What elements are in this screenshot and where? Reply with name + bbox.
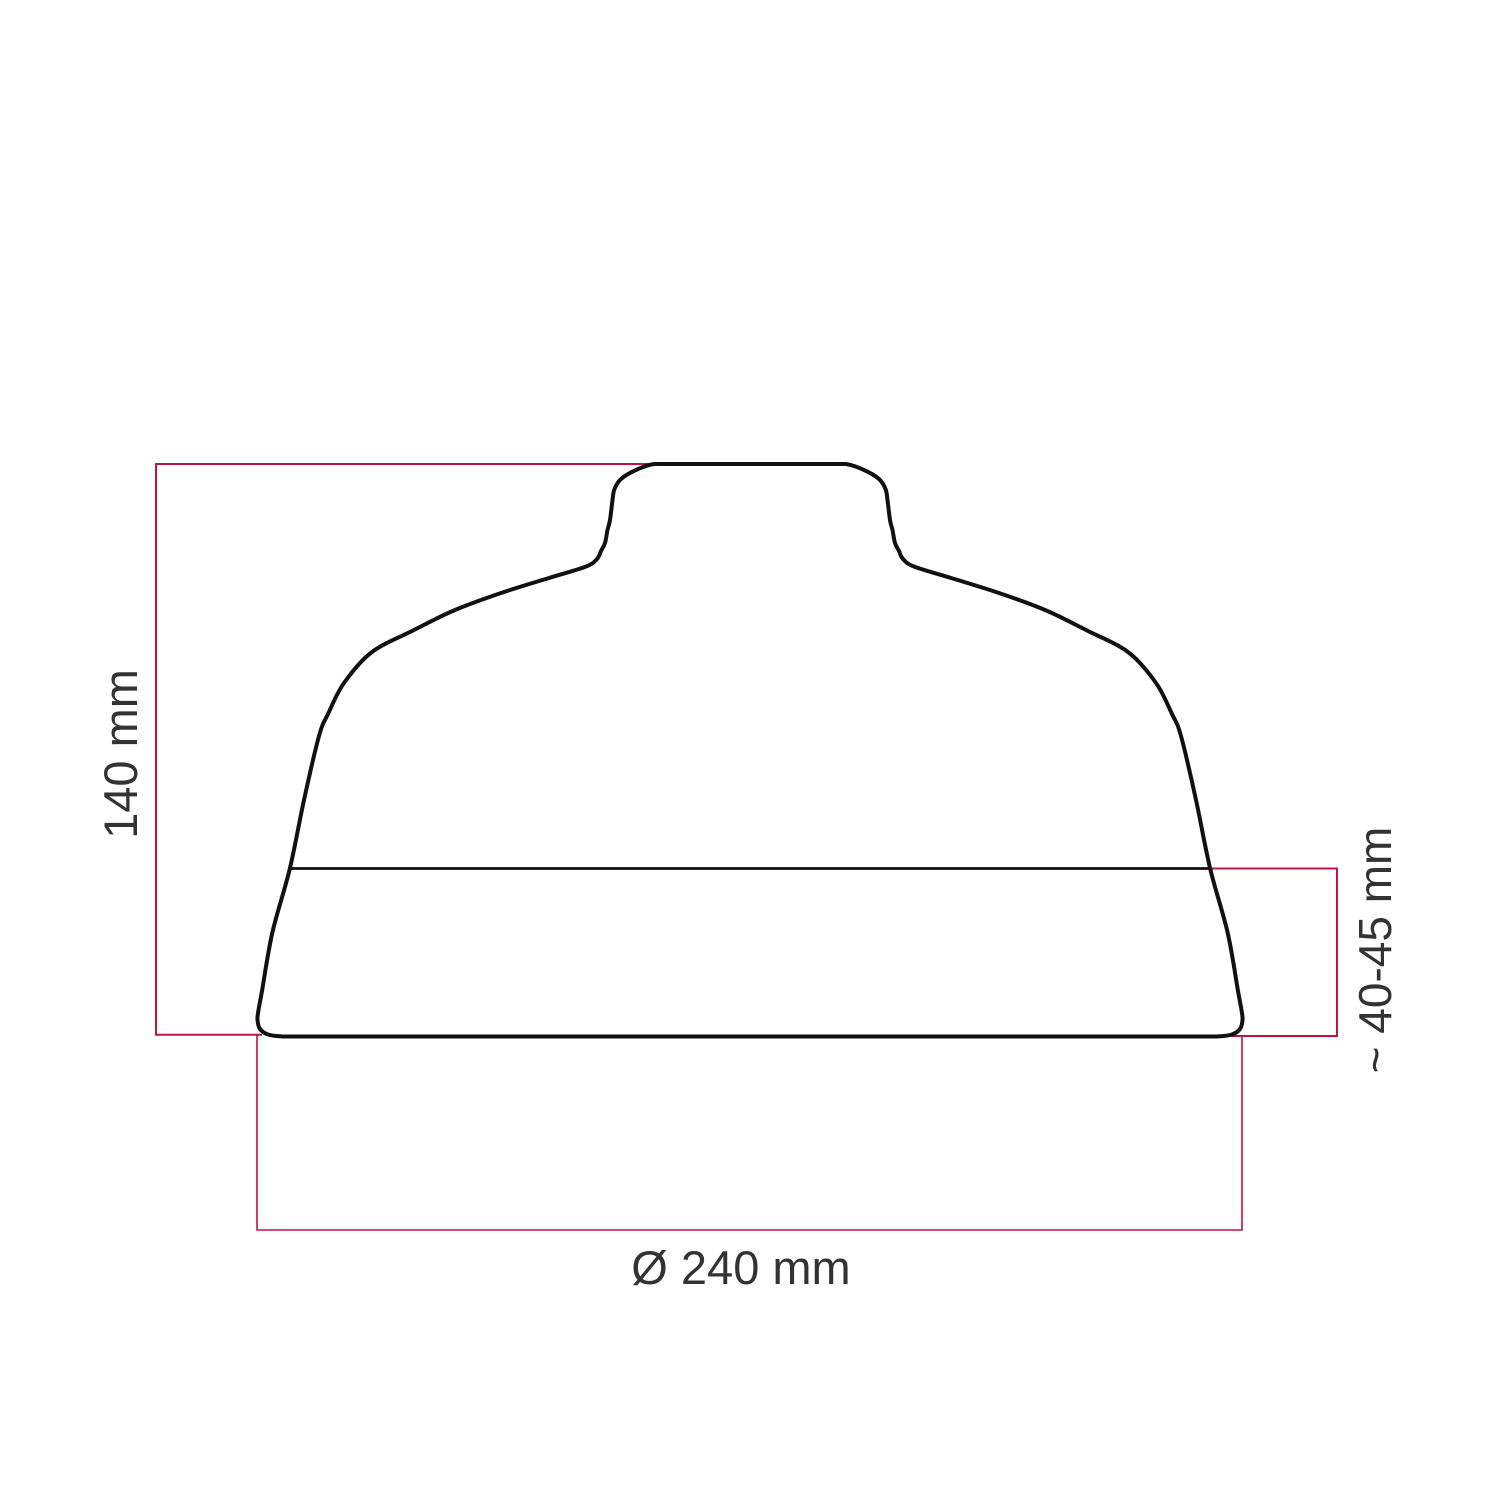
svg-text:~ 40-45 mm: ~ 40-45 mm (1349, 827, 1401, 1074)
svg-text:140 mm: 140 mm (94, 669, 147, 839)
svg-text:Ø 240 mm: Ø 240 mm (631, 1241, 850, 1294)
